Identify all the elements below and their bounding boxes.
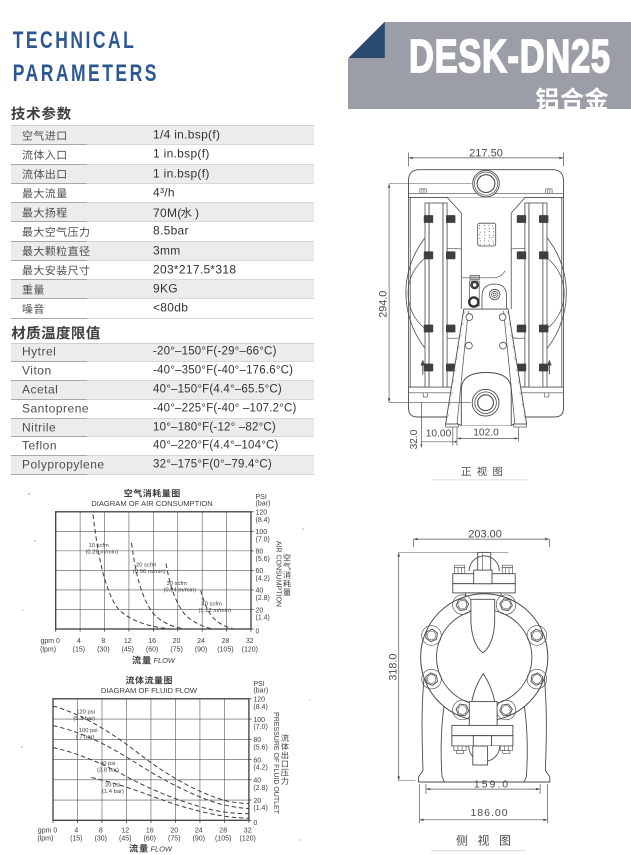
svg-text:10.00: 10.00 [426, 429, 452, 440]
svg-text:(105): (105) [215, 836, 231, 843]
svg-text:(1.4): (1.4) [256, 615, 270, 622]
svg-text:80: 80 [256, 549, 264, 556]
svg-text:FLOW: FLOW [154, 656, 176, 665]
svg-text:186.00: 186.00 [470, 807, 508, 819]
svg-text:(90): (90) [193, 836, 205, 843]
svg-text:120 psi: 120 psi [76, 710, 95, 716]
svg-text:(45): (45) [119, 836, 131, 843]
svg-text:120: 120 [253, 697, 265, 704]
svg-text:(5.6): (5.6) [256, 556, 270, 563]
svg-text:100: 100 [256, 529, 268, 536]
svg-text:40: 40 [256, 588, 264, 595]
svg-text:102.0: 102.0 [473, 428, 499, 439]
svg-text:(0.56 m/min): (0.56 m/min) [133, 569, 166, 575]
svg-text:100 psi: 100 psi [79, 728, 98, 734]
svg-text:30 scfm: 30 scfm [167, 581, 187, 587]
svg-text:(15): (15) [70, 836, 82, 843]
svg-text:(75): (75) [170, 646, 182, 653]
svg-text:32.0: 32.0 [409, 429, 420, 449]
svg-text:(8.3 bar): (8.3 bar) [73, 716, 95, 722]
svg-text:60: 60 [253, 757, 261, 764]
svg-text:0: 0 [256, 629, 260, 636]
svg-text:(bar): (bar) [253, 688, 268, 695]
svg-text:(5.6): (5.6) [253, 744, 267, 751]
svg-text:(60): (60) [144, 836, 156, 843]
svg-text:(120): (120) [242, 646, 258, 653]
svg-text:120: 120 [256, 510, 268, 517]
svg-text:gpm 0: gpm 0 [38, 828, 58, 835]
svg-text:( 7 bar): ( 7 bar) [76, 735, 95, 741]
svg-text:217.50: 217.50 [469, 148, 503, 160]
svg-text:DIAGRAM OF AIR CONSUMPTION: DIAGRAM OF AIR CONSUMPTION [91, 499, 213, 508]
svg-text:32: 32 [246, 638, 254, 645]
svg-text:gpm 0: gpm 0 [41, 638, 61, 645]
svg-text:(2.8): (2.8) [253, 785, 267, 792]
svg-text:32: 32 [244, 828, 252, 835]
svg-text:20: 20 [253, 798, 261, 805]
svg-text:8: 8 [101, 638, 105, 645]
svg-text:PSI: PSI [253, 681, 264, 688]
svg-text:(lpm): (lpm) [37, 836, 53, 843]
svg-text:20 scfm: 20 scfm [136, 563, 156, 569]
svg-text:60: 60 [256, 568, 264, 575]
svg-text:(bar): (bar) [256, 501, 271, 508]
svg-text:100: 100 [253, 717, 265, 724]
svg-text:(7.0): (7.0) [253, 724, 267, 731]
svg-text:(0.28 m/min): (0.28 m/min) [86, 550, 119, 556]
svg-text:(1.12 m/min): (1.12 m/min) [199, 608, 232, 614]
svg-text:(4.2): (4.2) [256, 575, 270, 582]
svg-text:PSI: PSI [256, 494, 267, 501]
svg-text:(lpm): (lpm) [40, 646, 56, 653]
svg-text:(105): (105) [217, 646, 233, 653]
svg-text:(15): (15) [73, 646, 85, 653]
svg-text:(120): (120) [240, 836, 256, 843]
svg-text:28: 28 [219, 828, 227, 835]
svg-text:16: 16 [146, 828, 154, 835]
svg-text:40: 40 [253, 778, 261, 785]
svg-text:(30): (30) [95, 836, 107, 843]
svg-text:(75): (75) [168, 836, 180, 843]
svg-text:(1.4 bar): (1.4 bar) [102, 789, 124, 795]
svg-text:24: 24 [197, 638, 205, 645]
svg-text:12: 12 [121, 828, 129, 835]
svg-text:203.00: 203.00 [468, 529, 502, 541]
svg-text:20: 20 [170, 828, 178, 835]
svg-text:20 psi: 20 psi [105, 783, 120, 789]
svg-text:80: 80 [253, 737, 261, 744]
svg-text:16: 16 [148, 638, 156, 645]
svg-text:20: 20 [173, 638, 181, 645]
svg-text:(7.0): (7.0) [256, 536, 270, 543]
svg-text:294.0: 294.0 [377, 291, 389, 318]
svg-text:(2.8 bar): (2.8 bar) [97, 768, 119, 774]
svg-text:(1.4): (1.4) [253, 805, 267, 812]
svg-text:159.0: 159.0 [474, 778, 510, 790]
svg-text:(2.8): (2.8) [256, 595, 270, 602]
svg-text:(8.4): (8.4) [253, 704, 267, 711]
svg-text:12: 12 [124, 638, 132, 645]
svg-text:(4.2): (4.2) [253, 765, 267, 772]
svg-text:(0.84 m/min): (0.84 m/min) [164, 588, 197, 594]
svg-text:10 scfm: 10 scfm [89, 543, 109, 549]
svg-text:4: 4 [74, 828, 78, 835]
svg-text:40 scfm: 40 scfm [202, 602, 222, 608]
svg-text:20: 20 [256, 607, 264, 614]
svg-text:PRESSURE OF FLUID OUTLET: PRESSURE OF FLUID OUTLET [272, 712, 279, 815]
svg-text:(8.4): (8.4) [256, 517, 270, 524]
svg-text:0: 0 [253, 820, 257, 827]
svg-text:(90): (90) [195, 646, 207, 653]
svg-text:DIAGRAM OF FLUID FLOW: DIAGRAM OF FLUID FLOW [101, 686, 198, 695]
svg-text:(60): (60) [146, 646, 158, 653]
svg-text:AIR CONSUMPTION: AIR CONSUMPTION [274, 541, 281, 607]
svg-text:28: 28 [221, 638, 229, 645]
svg-text:40 psi: 40 psi [100, 761, 115, 767]
svg-text:(45): (45) [122, 646, 134, 653]
svg-text:(30): (30) [97, 646, 109, 653]
svg-text:4: 4 [77, 638, 81, 645]
svg-text:24: 24 [195, 828, 203, 835]
svg-text:8: 8 [99, 828, 103, 835]
svg-text:FLOW: FLOW [151, 844, 173, 853]
svg-text:318.0: 318.0 [387, 654, 399, 681]
